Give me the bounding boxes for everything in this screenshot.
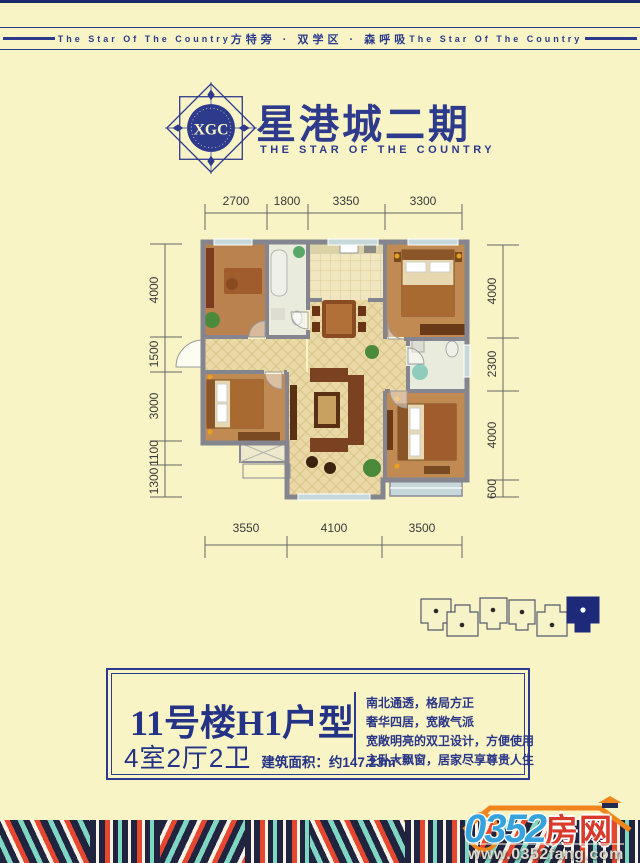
stripe-segment — [0, 820, 90, 863]
unit-info-box: 11号楼H1户型 4室2厅2卫 建筑面积：约147.23m² 南北通透，格局方正… — [106, 668, 530, 780]
dim-label-right-2: 4000 — [485, 422, 499, 449]
site-plan — [415, 585, 615, 647]
feature-line: 宽敞明亮的双卫设计，方便使用 — [366, 732, 534, 751]
brand-subtitle: THE STAR OF THE COUNTRY — [260, 144, 495, 156]
stripe-segment — [310, 820, 405, 863]
dim-label-top-2: 3350 — [333, 194, 360, 208]
dim-label-left-2: 3000 — [147, 393, 161, 420]
watermark-logo: 0352房网 www.0352fang.com — [460, 796, 638, 862]
top-banner: The Star Of The Country 方特旁 · 双学区 · 森呼吸 … — [0, 27, 640, 50]
top-navy-strip — [0, 0, 640, 3]
dim-label-top-0: 2700 — [223, 194, 250, 208]
feature-line: 主卧大飘窗，居家尽享尊贵人生 — [366, 751, 534, 770]
dim-label-top-1: 1800 — [274, 194, 301, 208]
dim-label-left-0: 4000 — [147, 277, 161, 304]
dim-label-right-0: 4000 — [485, 278, 499, 305]
dim-label-top-3: 3300 — [410, 194, 437, 208]
dim-label-right-1: 2300 — [485, 351, 499, 378]
dim-label-left-4: 1300 — [147, 468, 161, 495]
stripe-segment — [245, 820, 310, 863]
banner-right-dash — [585, 37, 637, 40]
banner-left-dash — [3, 37, 55, 40]
watermark-url: www.0352fang.com — [468, 843, 624, 863]
banner-right-text: The Star Of The Country — [409, 34, 582, 44]
highlighted-building-11 — [567, 597, 599, 632]
dim-label-left-1: 1500 — [147, 341, 161, 368]
feature-list: 南北通透，格局方正 奢华四居，宽敞气派 宽敞明亮的双卫设计，方便使用 主卧大飘窗… — [366, 694, 534, 770]
poster: The Star Of The Country 方特旁 · 双学区 · 森呼吸 … — [0, 0, 640, 863]
unit-spec-row: 4室2厅2卫 建筑面积：约147.23m² — [124, 738, 400, 775]
dim-label-bottom-0: 3550 — [233, 521, 260, 535]
dim-label-bottom-1: 4100 — [321, 521, 348, 535]
dim-label-bottom-2: 3500 — [409, 521, 436, 535]
feature-line: 奢华四居，宽敞气派 — [366, 713, 534, 732]
banner-center-text: 方特旁 · 双学区 · 森呼吸 — [231, 31, 410, 47]
feature-line: 南北通透，格局方正 — [366, 694, 534, 713]
floor-plan — [140, 185, 540, 570]
dim-label-left-3: 1100 — [147, 440, 161, 466]
banner-left-text: The Star Of The Country — [58, 34, 231, 44]
brand-monogram: XGC — [194, 121, 229, 138]
brand-title: 星港城二期 — [256, 92, 496, 150]
compass-logo-icon: XGC — [165, 82, 257, 174]
dim-label-right-3: 600 — [485, 479, 499, 499]
stripe-segment — [160, 820, 245, 863]
unit-layout: 4室2厅2卫 — [124, 738, 251, 775]
stripe-segment — [90, 820, 160, 863]
info-divider — [354, 692, 356, 758]
